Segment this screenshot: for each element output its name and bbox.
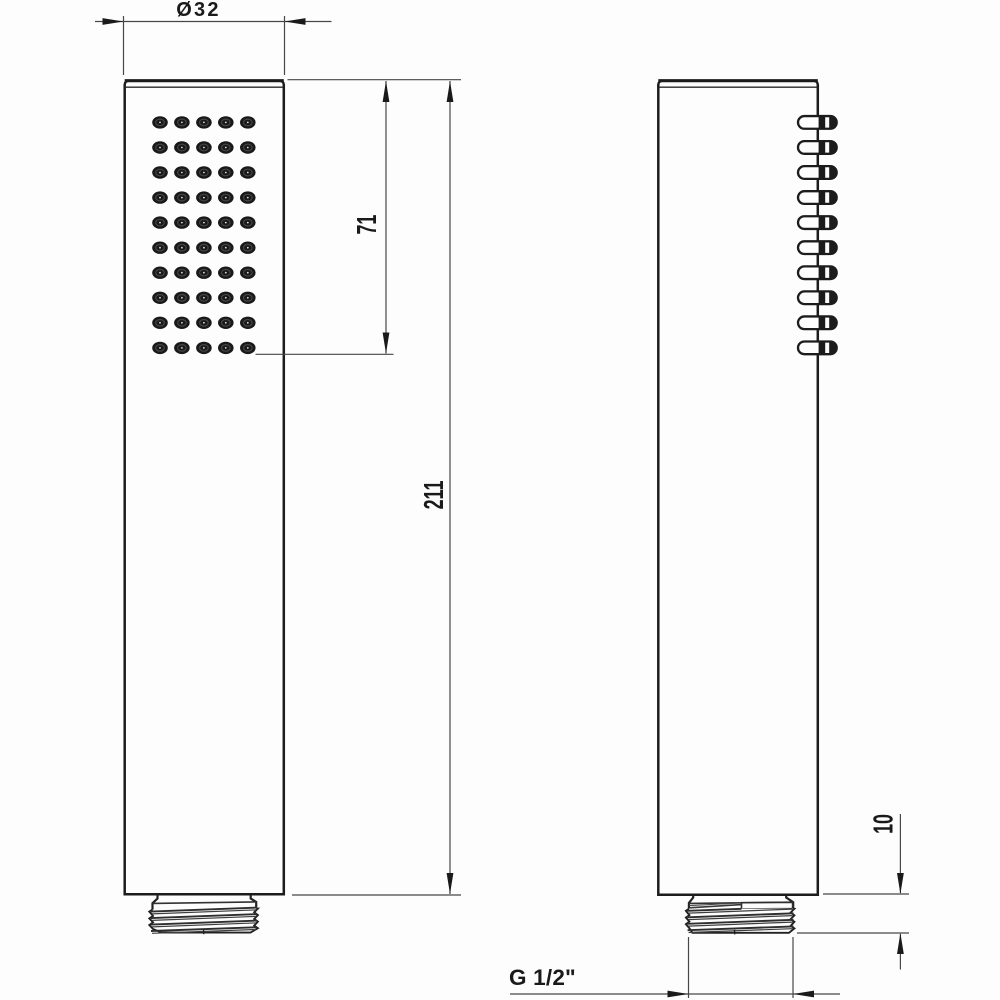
- svg-text:Ø32: Ø32: [176, 0, 220, 21]
- svg-text:71: 71: [351, 215, 382, 235]
- svg-text:211: 211: [418, 481, 449, 510]
- svg-text:10: 10: [868, 814, 899, 834]
- svg-text:G 1/2": G 1/2": [509, 965, 576, 990]
